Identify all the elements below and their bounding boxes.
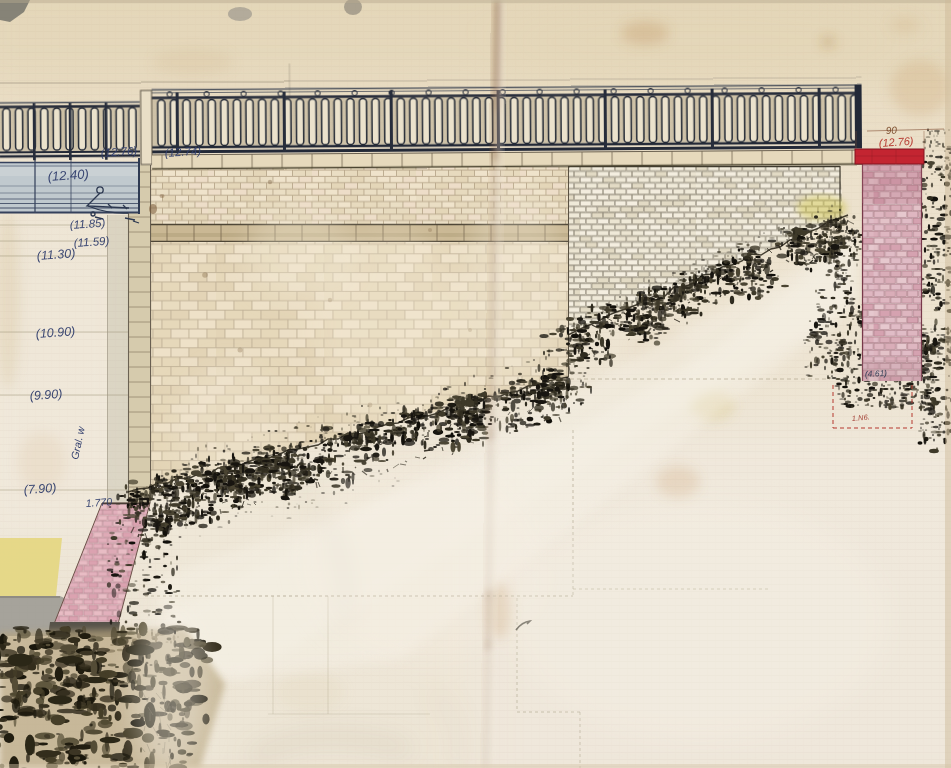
- svg-text:(4.61): (4.61): [865, 368, 888, 379]
- svg-text:(7.90): (7.90): [23, 481, 57, 497]
- svg-text:(10.90): (10.90): [35, 324, 75, 341]
- svg-text:(12.74): (12.74): [164, 144, 201, 159]
- svg-text:(12.40): (12.40): [47, 166, 89, 184]
- svg-text:(12.76): (12.76): [100, 144, 137, 159]
- svg-text:(12.76): (12.76): [878, 135, 914, 149]
- svg-text:(9.90): (9.90): [29, 387, 63, 403]
- svg-text:1.N6.: 1.N6.: [851, 412, 870, 423]
- svg-text:(11.85): (11.85): [69, 217, 106, 231]
- svg-text:1.770: 1.770: [85, 495, 112, 509]
- svg-text:(11.59): (11.59): [73, 235, 110, 249]
- svg-text:(11.30): (11.30): [36, 246, 76, 263]
- svg-text:90: 90: [886, 124, 898, 136]
